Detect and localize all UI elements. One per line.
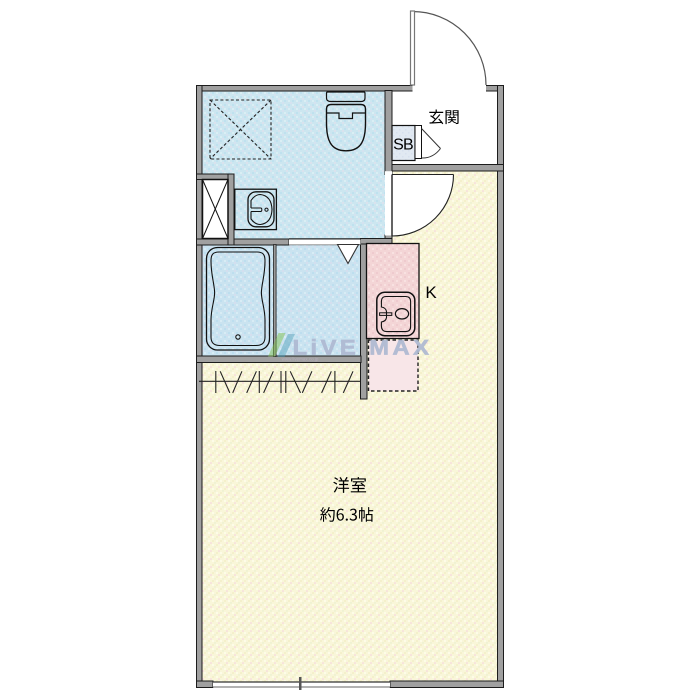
svg-text:www.livemax.co.jp: www.livemax.co.jp	[282, 357, 319, 362]
svg-text:SB: SB	[393, 137, 413, 154]
svg-text:K: K	[425, 283, 437, 302]
